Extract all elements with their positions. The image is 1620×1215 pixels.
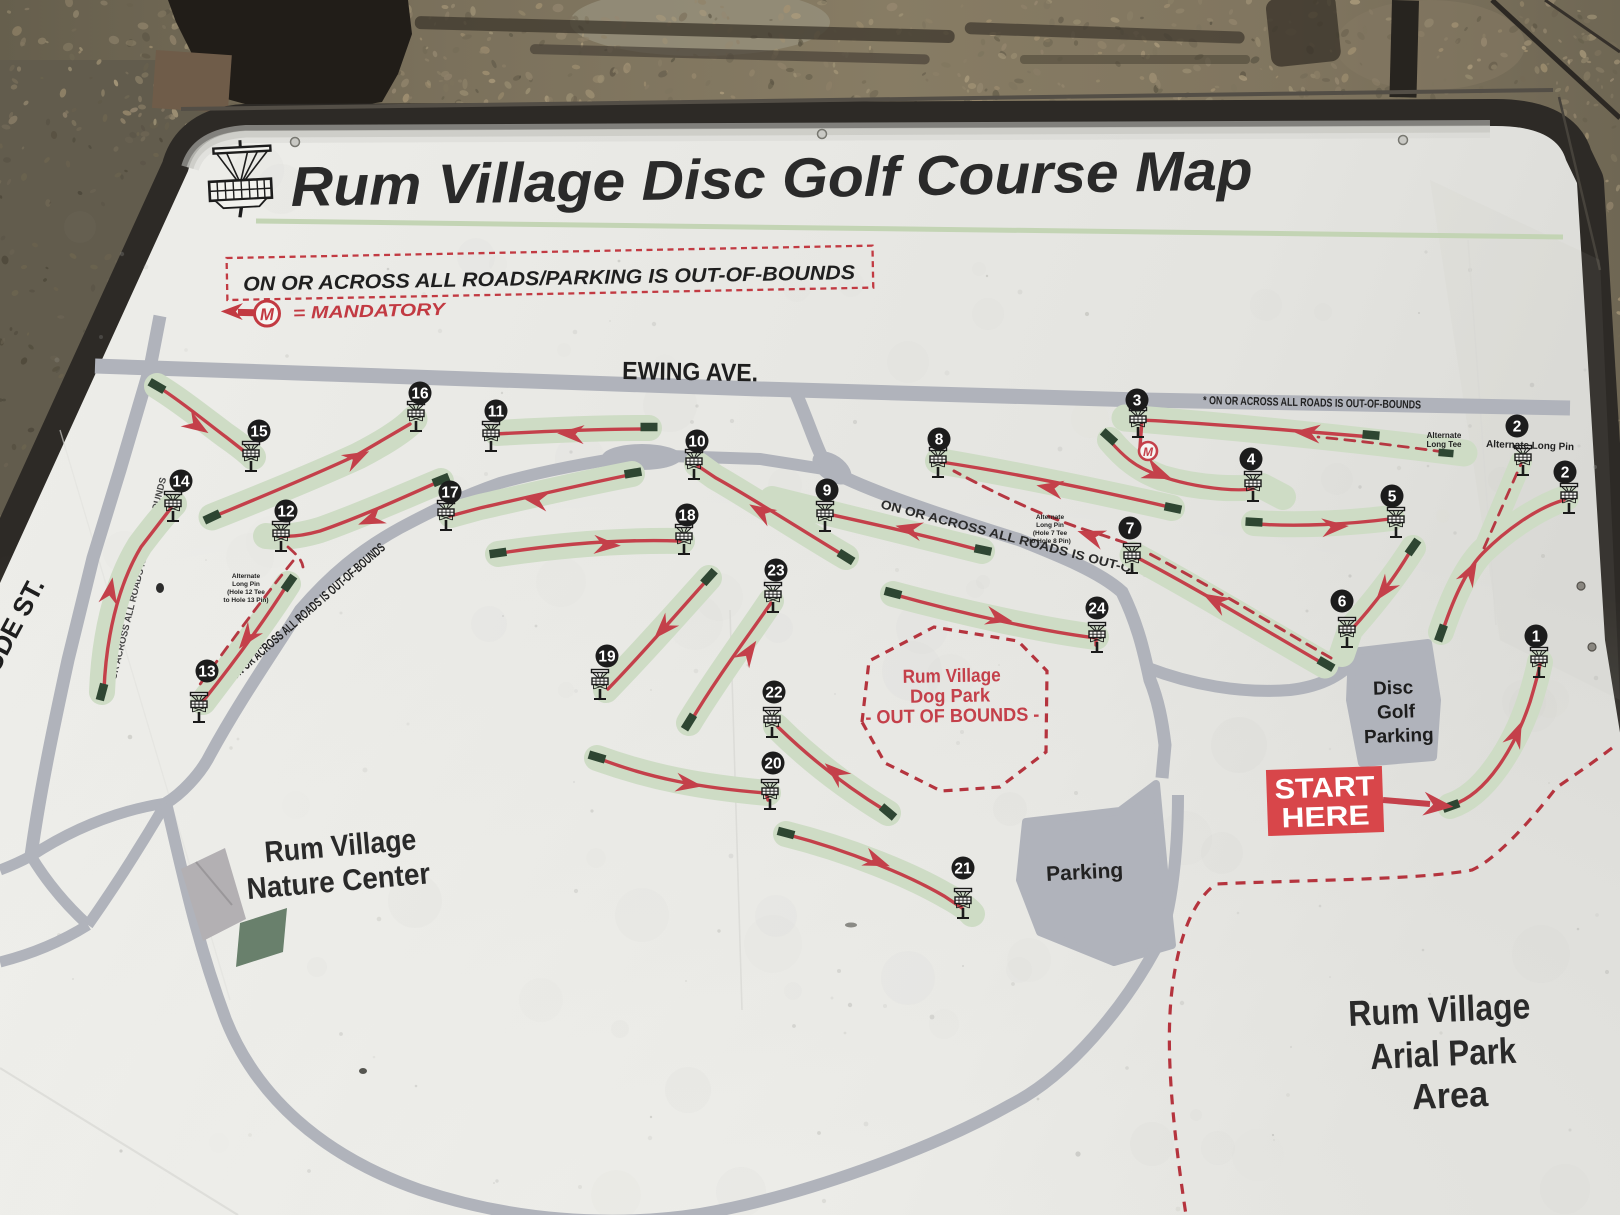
svg-text:Long Pin: Long Pin [1036, 522, 1064, 529]
svg-text:15: 15 [250, 423, 268, 440]
svg-text:4: 4 [1247, 451, 1256, 468]
svg-text:to Hole 8 Pin): to Hole 8 Pin) [1029, 538, 1071, 545]
svg-text:6: 6 [1338, 593, 1347, 610]
svg-text:Dog Park: Dog Park [910, 685, 991, 707]
svg-text:Area: Area [1411, 1073, 1490, 1117]
svg-text:Parking: Parking [1046, 859, 1124, 886]
svg-text:3: 3 [1133, 392, 1142, 409]
svg-text:7: 7 [1126, 520, 1135, 537]
svg-text:5: 5 [1388, 488, 1397, 505]
svg-text:M: M [1143, 445, 1154, 459]
svg-text:19: 19 [598, 648, 616, 665]
svg-text:Disc: Disc [1373, 677, 1414, 699]
svg-text:(Hole 7 Tee: (Hole 7 Tee [1033, 530, 1068, 537]
svg-text:20: 20 [764, 755, 781, 772]
svg-text:11: 11 [488, 403, 505, 420]
svg-text:Parking: Parking [1364, 725, 1434, 748]
svg-text:Arial Park: Arial Park [1369, 1030, 1517, 1077]
svg-text:14: 14 [172, 473, 190, 490]
svg-text:24: 24 [1088, 600, 1106, 617]
svg-text:10: 10 [688, 433, 705, 450]
svg-text:Rum Village: Rum Village [1347, 985, 1531, 1034]
svg-text:12: 12 [277, 503, 294, 520]
svg-text:Alternate: Alternate [232, 573, 261, 580]
svg-text:Alternate: Alternate [1036, 514, 1065, 521]
svg-text:2: 2 [1561, 464, 1570, 481]
svg-text:EWING AVE.: EWING AVE. [622, 357, 758, 387]
svg-text:1: 1 [1532, 628, 1541, 645]
svg-text:Long Tee: Long Tee [1427, 440, 1463, 449]
svg-text:= MANDATORY: = MANDATORY [293, 299, 447, 323]
svg-text:Long Pin: Long Pin [232, 581, 260, 588]
svg-text:17: 17 [441, 484, 458, 501]
svg-text:21: 21 [954, 860, 972, 877]
svg-text:18: 18 [678, 507, 696, 524]
svg-text:- OUT OF BOUNDS -: - OUT OF BOUNDS - [865, 705, 1039, 729]
svg-text:2: 2 [1513, 418, 1522, 435]
svg-text:M: M [260, 305, 275, 324]
svg-text:9: 9 [823, 482, 832, 499]
svg-text:to Hole 13 Pin): to Hole 13 Pin) [223, 597, 268, 604]
svg-text:16: 16 [411, 385, 429, 402]
svg-text:HERE: HERE [1281, 799, 1370, 833]
svg-text:22: 22 [765, 684, 782, 701]
svg-text:Alternate: Alternate [1427, 431, 1462, 440]
svg-text:23: 23 [767, 562, 785, 579]
svg-text:Golf: Golf [1377, 701, 1416, 723]
svg-text:13: 13 [198, 663, 216, 680]
svg-text:8: 8 [935, 431, 944, 448]
svg-text:(Hole 12 Tee: (Hole 12 Tee [227, 589, 265, 596]
